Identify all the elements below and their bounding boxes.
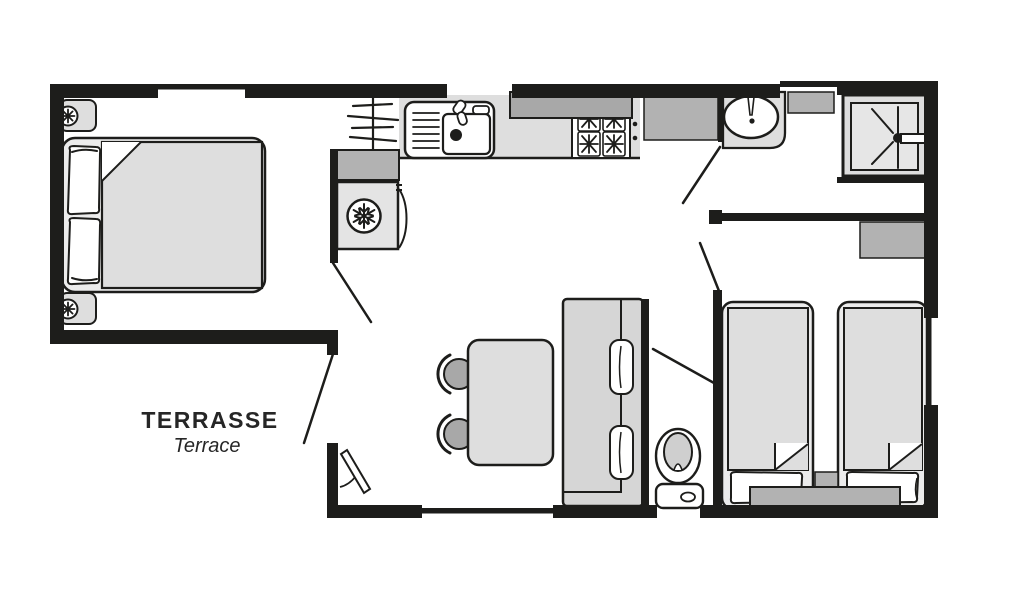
wall-right-2 xyxy=(924,405,938,518)
wall-left xyxy=(50,84,64,344)
toilet-icon xyxy=(656,429,703,508)
sofa-bench-icon xyxy=(563,299,643,506)
window-icon xyxy=(158,84,245,90)
door-swing-icon xyxy=(333,263,371,322)
floor-plan: TERRASSE Terrace xyxy=(0,0,1029,590)
wall-bedroom-kitchen xyxy=(330,150,338,263)
drying-rack-icon xyxy=(348,95,398,150)
terrace-label: TERRASSE Terrace xyxy=(141,407,278,457)
door-swing-icon xyxy=(653,349,714,383)
wall-top-1 xyxy=(50,84,158,98)
wall-top-2 xyxy=(245,84,447,98)
pillow-icon xyxy=(68,218,100,284)
kitchen-counter-end xyxy=(644,95,718,140)
fridge-snowflake-icon xyxy=(348,200,381,233)
kitchen-sink-icon xyxy=(405,99,494,158)
door-swing-icon xyxy=(683,147,720,203)
wall-top-3 xyxy=(512,84,780,98)
wall-bottom-1 xyxy=(327,505,422,518)
wall-top-4 xyxy=(837,81,938,95)
window-icon xyxy=(926,318,932,405)
bathroom xyxy=(723,92,928,258)
single-bed-left xyxy=(722,302,813,509)
wall-kitchen-bathroom xyxy=(718,88,724,142)
counter-return xyxy=(331,150,399,180)
wall-under-shower xyxy=(837,177,924,183)
kitchen xyxy=(331,92,718,249)
wall-bedroom-south xyxy=(50,330,338,344)
master-bedroom xyxy=(59,100,266,324)
pillow-icon xyxy=(68,146,100,214)
duvet xyxy=(102,142,262,288)
washbasin-icon xyxy=(723,92,785,148)
dining-table-icon xyxy=(468,340,553,465)
terrace-label-fr: TERRASSE xyxy=(141,407,278,433)
door-swing-icon xyxy=(304,354,333,443)
single-bed-right xyxy=(838,302,927,509)
wardrobe-icon xyxy=(860,222,926,258)
wall-right-1 xyxy=(924,84,938,318)
dining-area xyxy=(438,340,553,465)
wall-sofa-wc xyxy=(641,299,649,507)
soap-dish xyxy=(473,106,489,114)
drain xyxy=(450,129,462,141)
wc xyxy=(656,429,703,508)
window-icon xyxy=(780,81,837,87)
entry-door-leaf xyxy=(340,450,370,493)
twin-bedroom xyxy=(722,302,927,509)
wall-hall-twinroom xyxy=(712,213,928,221)
fridge-door-swing xyxy=(399,189,407,248)
shower-handle xyxy=(901,134,928,143)
window-icon xyxy=(422,508,553,514)
nightstand-bottom xyxy=(59,293,97,324)
nightstand-top xyxy=(59,100,97,131)
terrace-label-en: Terrace xyxy=(173,435,240,457)
bed-end-shelf xyxy=(750,487,900,508)
wall-wc-twinroom xyxy=(713,290,722,507)
door-swing-icon xyxy=(700,243,719,291)
shower-tray-icon xyxy=(843,95,928,176)
fridge xyxy=(337,182,407,249)
double-bed xyxy=(62,138,265,292)
shelf-icon xyxy=(788,92,834,113)
wall-bottom-3 xyxy=(700,505,938,518)
